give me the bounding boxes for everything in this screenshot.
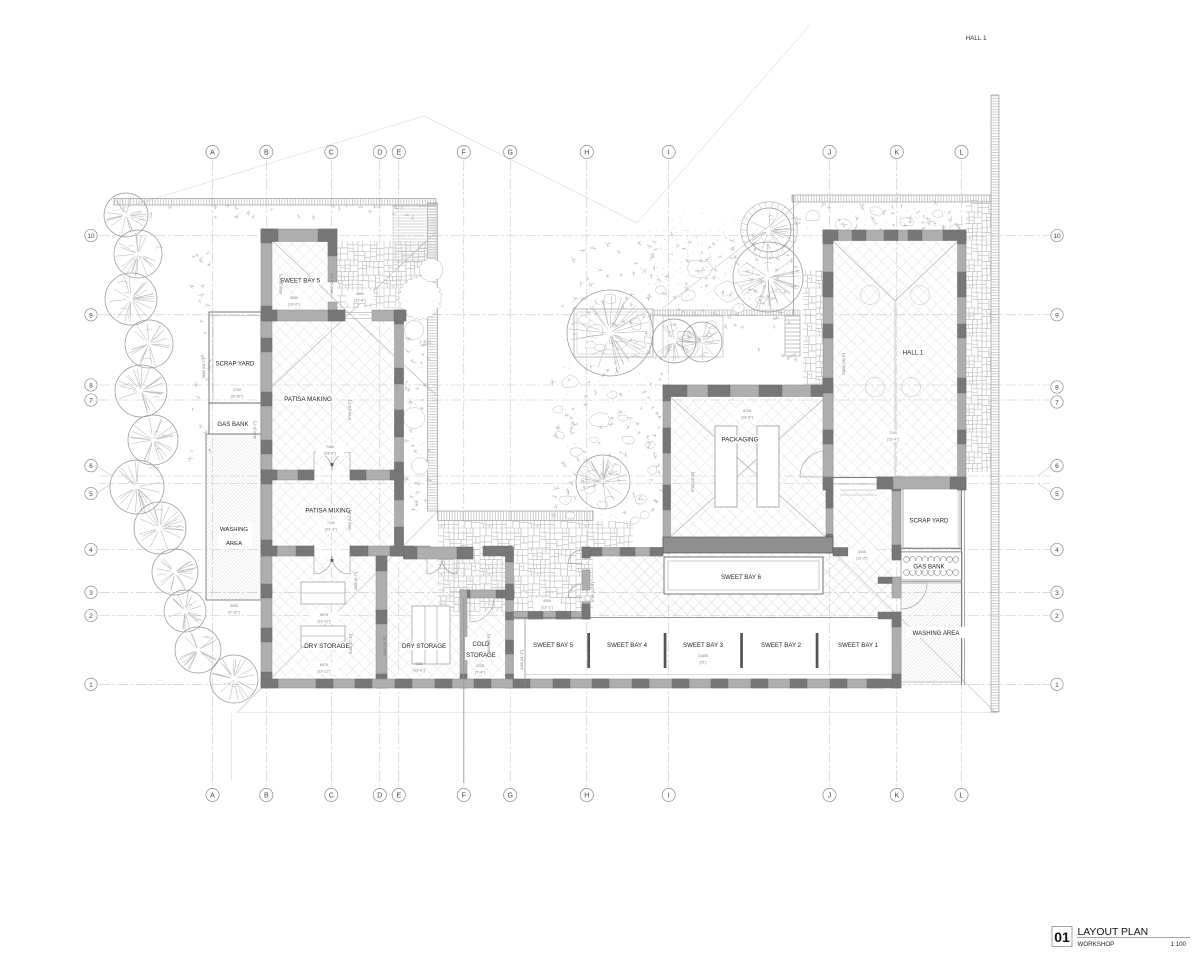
svg-text:DRY STORAGE: DRY STORAGE — [402, 643, 446, 650]
svg-text:HALL 1: HALL 1 — [903, 350, 924, 357]
svg-text:9: 9 — [89, 312, 93, 319]
svg-text:[12'-8"]: [12'-8"] — [354, 298, 365, 302]
svg-text:2700: 2700 — [233, 388, 241, 392]
svg-text:6: 6 — [1055, 463, 1059, 470]
svg-text:3400: 3400 — [858, 550, 866, 554]
svg-text:4150 [13'-7"]: 4150 [13'-7"] — [279, 274, 283, 294]
svg-text:G: G — [507, 793, 512, 800]
svg-text:4600 [15'-1"]: 4600 [15'-1"] — [330, 274, 334, 294]
svg-text:7: 7 — [89, 398, 93, 405]
svg-text:B: B — [264, 150, 269, 157]
svg-text:J: J — [828, 150, 832, 157]
svg-text:[9'-10"]: [9'-10"] — [228, 610, 239, 614]
svg-text:A: A — [210, 150, 215, 157]
svg-text:L: L — [960, 793, 964, 800]
svg-text:3: 3 — [1055, 590, 1059, 597]
svg-text:6: 6 — [89, 463, 93, 470]
svg-text:SWEET BAY 5: SWEET BAY 5 — [280, 278, 321, 285]
svg-text:4800 [15'-9"]: 4800 [15'-9"] — [487, 634, 491, 654]
svg-text:8: 8 — [89, 383, 93, 390]
svg-text:7100: 7100 — [889, 431, 897, 435]
svg-text:E: E — [396, 793, 401, 800]
svg-text:F: F — [462, 793, 466, 800]
svg-text:[11'-2"]: [11'-2"] — [857, 556, 868, 560]
svg-text:3050: 3050 — [290, 296, 298, 300]
svg-text:I: I — [668, 793, 670, 800]
svg-text:2: 2 — [1055, 613, 1059, 620]
svg-text:A: A — [210, 793, 215, 800]
svg-text:[7'-4"]: [7'-4"] — [475, 670, 484, 674]
svg-text:3880: 3880 — [356, 292, 364, 296]
svg-text:WASHING AREA: WASHING AREA — [913, 630, 961, 637]
svg-text:4580: 4580 — [415, 662, 423, 666]
svg-text:9: 9 — [1055, 312, 1059, 319]
svg-text:D: D — [377, 150, 382, 157]
svg-text:4: 4 — [89, 547, 93, 554]
svg-text:3780 [12'-5"]: 3780 [12'-5"] — [591, 582, 595, 602]
svg-text:1100 [3'-7"]: 1100 [3'-7"] — [253, 421, 257, 439]
svg-text:[23'-3"]: [23'-3"] — [325, 527, 336, 531]
svg-text:C: C — [329, 150, 334, 157]
svg-text:1: 1 — [1055, 682, 1059, 689]
svg-text:8: 8 — [1055, 385, 1059, 392]
svg-text:G: G — [507, 150, 512, 157]
svg-text:H: H — [584, 793, 589, 800]
svg-text:7100: 7100 — [327, 521, 335, 525]
svg-text:[10'-0"]: [10'-0"] — [288, 302, 299, 306]
svg-text:7180: 7180 — [326, 445, 334, 449]
svg-text:SWEET BAY 2: SWEET BAY 2 — [761, 642, 802, 649]
svg-text:PACKAGING: PACKAGING — [722, 437, 759, 444]
svg-text:D: D — [377, 793, 382, 800]
svg-text:21650: 21650 — [698, 654, 708, 658]
svg-text:LAYOUT PLAN: LAYOUT PLAN — [1078, 927, 1149, 938]
svg-text:3000: 3000 — [230, 604, 238, 608]
svg-text:1:100: 1:100 — [1171, 941, 1187, 948]
svg-text:WASHING: WASHING — [220, 527, 248, 533]
svg-text:3: 3 — [89, 590, 93, 597]
svg-text:SWEET BAY 5: SWEET BAY 5 — [533, 642, 574, 649]
svg-text:C: C — [329, 793, 334, 800]
svg-text:K: K — [894, 150, 899, 157]
svg-text:1: 1 — [89, 682, 93, 689]
svg-text:5400 [17'-8"]: 5400 [17'-8"] — [349, 634, 353, 654]
svg-text:2000 [6'-7"]: 2000 [6'-7"] — [354, 572, 358, 590]
svg-text:SWEET BAY 1: SWEET BAY 1 — [838, 642, 879, 649]
svg-text:[13'-1"]: [13'-1"] — [541, 605, 552, 609]
svg-text:SWEET BAY 4: SWEET BAY 4 — [607, 642, 648, 649]
svg-text:HALL 1: HALL 1 — [965, 35, 987, 42]
svg-text:3400 [11'-2"]: 3400 [11'-2"] — [520, 650, 524, 670]
svg-text:6075: 6075 — [320, 663, 328, 667]
svg-text:[15'-0"]: [15'-0"] — [413, 668, 424, 672]
svg-text:[23'-4"]: [23'-4"] — [887, 437, 898, 441]
svg-text:SWEET BAY 3: SWEET BAY 3 — [683, 642, 724, 649]
svg-text:3800 [12'-6"]: 3800 [12'-6"] — [348, 510, 352, 530]
svg-text:[71']: [71'] — [700, 660, 707, 664]
svg-text:10: 10 — [87, 233, 95, 240]
svg-text:WORKSHOP: WORKSHOP — [1078, 941, 1115, 948]
svg-text:2: 2 — [89, 613, 93, 620]
svg-text:5680 [18'-7"]: 5680 [18'-7"] — [202, 358, 206, 378]
svg-text:8700 [28'-7"]: 8700 [28'-7"] — [348, 400, 352, 420]
svg-text:DRY STORAGE: DRY STORAGE — [304, 643, 350, 650]
svg-text:PATISA MAKING: PATISA MAKING — [284, 396, 332, 403]
svg-text:4000: 4000 — [543, 599, 551, 603]
svg-text:SCRAP YARD: SCRAP YARD — [910, 518, 950, 525]
svg-text:[28'-8"]: [28'-8"] — [741, 415, 752, 419]
svg-text:[19'-11"]: [19'-11"] — [318, 619, 331, 623]
svg-text:6075: 6075 — [320, 613, 328, 617]
svg-text:I: I — [668, 150, 670, 157]
svg-text:4: 4 — [1055, 547, 1059, 554]
svg-text:E: E — [396, 150, 401, 157]
svg-text:K: K — [894, 793, 899, 800]
svg-text:SWEET BAY 6: SWEET BAY 6 — [721, 574, 762, 581]
svg-text:[8'-10"]: [8'-10"] — [231, 394, 242, 398]
svg-text:F: F — [462, 150, 466, 157]
svg-text:13848 [45'-5"]: 13848 [45'-5"] — [842, 353, 846, 375]
svg-text:8725 [28'-8"]: 8725 [28'-8"] — [691, 472, 695, 492]
svg-text:STORAGE: STORAGE — [466, 652, 496, 659]
svg-text:PATISA MIXING: PATISA MIXING — [305, 508, 350, 515]
svg-text:AREA: AREA — [226, 541, 242, 547]
svg-text:SCRAP YARD: SCRAP YARD — [216, 361, 256, 368]
svg-text:5: 5 — [1055, 491, 1059, 498]
svg-text:2225: 2225 — [476, 664, 484, 668]
svg-text:01: 01 — [1054, 929, 1070, 945]
svg-text:B: B — [264, 793, 269, 800]
svg-text:GAS BANK: GAS BANK — [913, 564, 944, 571]
svg-text:GAS BANK: GAS BANK — [217, 421, 248, 428]
svg-text:J: J — [828, 793, 832, 800]
svg-text:7: 7 — [1055, 400, 1059, 407]
svg-text:8725: 8725 — [743, 409, 751, 413]
svg-text:L: L — [960, 150, 964, 157]
svg-text:H: H — [584, 150, 589, 157]
svg-text:4800 [15'-9"]: 4800 [15'-9"] — [383, 636, 387, 656]
svg-text:[23'-6"]: [23'-6"] — [324, 451, 335, 455]
svg-text:10: 10 — [1053, 233, 1061, 240]
svg-text:[19'-11"]: [19'-11"] — [318, 669, 331, 673]
svg-text:5: 5 — [89, 491, 93, 498]
